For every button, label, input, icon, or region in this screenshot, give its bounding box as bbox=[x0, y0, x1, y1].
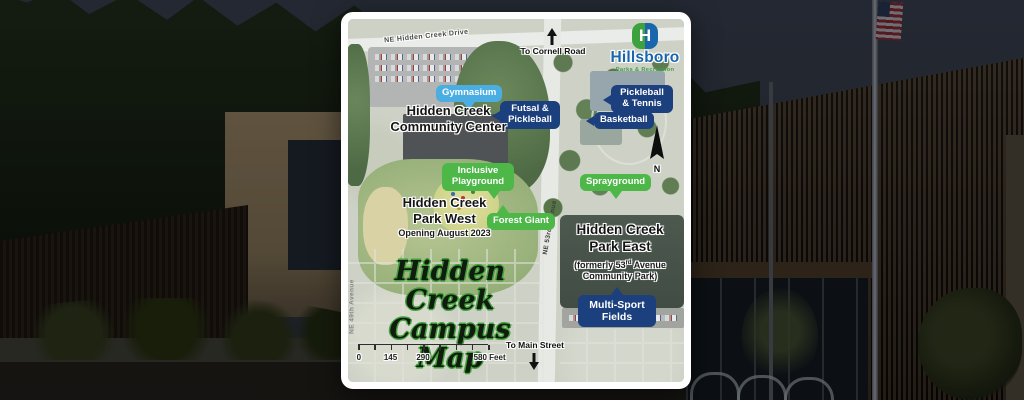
label-inclusive-playground: Inclusive Playground bbox=[442, 163, 514, 191]
neighborhood-streets bbox=[560, 329, 684, 382]
scale-end-label: 580 Feet bbox=[474, 353, 506, 362]
hillsboro-logo: H Hillsboro Parks & Recreation bbox=[605, 23, 684, 73]
park-west-name: Hidden Creek Park West Opening August 20… bbox=[372, 195, 517, 239]
label-gymnasium: Gymnasium bbox=[436, 85, 502, 102]
scale-tick-290: 290 bbox=[416, 353, 429, 362]
park-east-former-name: (formerly 53rd Avenue Community Park) bbox=[554, 260, 684, 283]
label-basketball: Basketball bbox=[594, 112, 654, 129]
compass-arrow bbox=[648, 125, 666, 167]
logo-wordmark: Hillsboro bbox=[605, 49, 684, 67]
logo-subtitle: Parks & Recreation bbox=[605, 67, 684, 73]
campus-map-image[interactable]: NE Hidden Creek Drive NE 53rd Avenue NE … bbox=[341, 12, 691, 389]
direction-to-cornell-road: To Cornell Road bbox=[503, 46, 603, 56]
north-compass-icon: N bbox=[646, 125, 668, 174]
scale-tick-145: 145 bbox=[384, 353, 397, 362]
label-sprayground: Sprayground bbox=[580, 174, 651, 191]
label-multi-sport-fields: Multi-Sport Fields bbox=[578, 295, 656, 327]
label-pickleball-tennis: Pickleball & Tennis bbox=[611, 85, 673, 113]
scale-bar: 0 145 290 580 Feet bbox=[358, 344, 488, 351]
community-center-name: Hidden Creek Community Center bbox=[376, 103, 521, 136]
park-west-opening-note: Opening August 2023 bbox=[372, 228, 517, 240]
park-east-name: Hidden Creek Park East (formerly 53rd Av… bbox=[554, 222, 684, 283]
hillsboro-h-icon: H bbox=[632, 23, 658, 49]
up-arrow-icon bbox=[547, 28, 557, 45]
direction-to-main-street: To Main Street bbox=[485, 340, 585, 350]
down-arrow-icon bbox=[529, 353, 539, 370]
scale-tick-0: 0 bbox=[357, 353, 361, 362]
aerial-map: NE Hidden Creek Drive NE 53rd Avenue NE … bbox=[348, 19, 684, 382]
map-title: Hidden Creek Campus Map bbox=[352, 257, 548, 374]
